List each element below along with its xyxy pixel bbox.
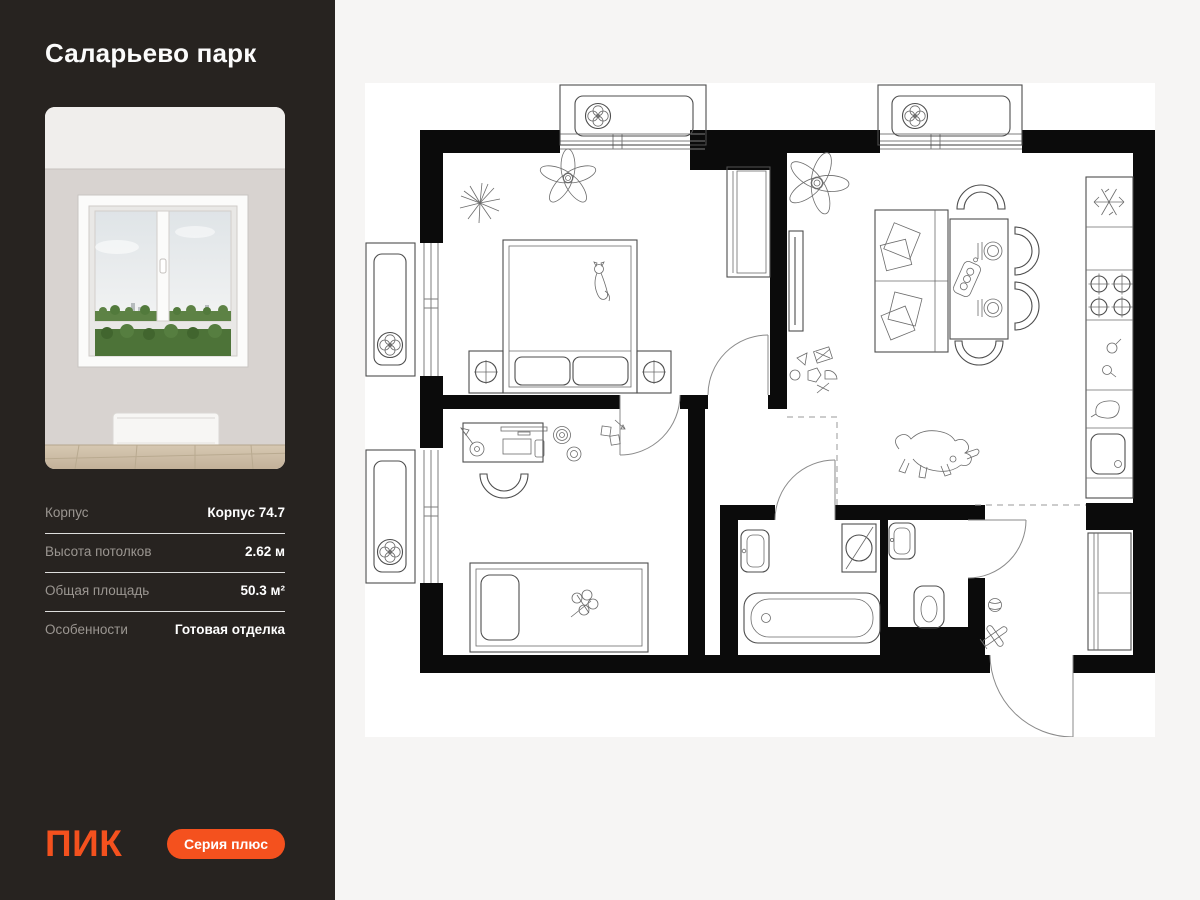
snowflake-icon bbox=[1094, 189, 1124, 215]
tv-unit bbox=[789, 231, 803, 331]
tray bbox=[952, 254, 985, 298]
desk-lamp bbox=[461, 428, 484, 456]
detail-row-features: Особенности Готовая отделка bbox=[45, 612, 285, 650]
bathtub-icon bbox=[744, 593, 880, 643]
wc-sink bbox=[889, 523, 915, 559]
wc bbox=[889, 523, 944, 628]
balcony-window bbox=[424, 450, 438, 583]
nightstand bbox=[637, 351, 671, 393]
detail-value: 2.62 м bbox=[245, 545, 285, 560]
photo-ceiling bbox=[45, 107, 285, 169]
series-plus-badge[interactable]: Серия плюс bbox=[167, 829, 285, 859]
fan-icon bbox=[378, 540, 403, 565]
chair bbox=[1015, 282, 1039, 330]
toy-ball bbox=[989, 599, 1002, 612]
plant bbox=[786, 150, 849, 216]
stove-burners-icon bbox=[1089, 274, 1133, 318]
property-details: Корпус Корпус 74.7 Высота потолков 2.62 … bbox=[45, 495, 285, 649]
detail-label: Особенности bbox=[45, 623, 128, 638]
wardrobe bbox=[727, 167, 770, 277]
plan-panel bbox=[335, 0, 1200, 900]
pik-logo: ПИК bbox=[45, 825, 122, 862]
zone-dashed-lines bbox=[787, 417, 1086, 505]
bedroom bbox=[460, 149, 770, 393]
kettle-icon bbox=[1091, 401, 1119, 418]
washing-machine-icon bbox=[842, 524, 876, 572]
kitchen-counter bbox=[1086, 177, 1133, 498]
chair bbox=[1015, 227, 1039, 275]
ac-box-left-lower bbox=[366, 450, 415, 583]
place-setting bbox=[978, 299, 1002, 317]
door-bedroom bbox=[708, 335, 768, 395]
walls bbox=[420, 130, 1155, 673]
hallway bbox=[977, 533, 1131, 654]
fan-icon bbox=[378, 333, 403, 358]
plant bbox=[460, 183, 500, 223]
sidebar: Саларьево парк bbox=[0, 0, 335, 900]
bed-double bbox=[503, 240, 637, 393]
lamp-icon bbox=[642, 360, 666, 384]
project-title: Саларьево парк bbox=[45, 38, 285, 69]
detail-row-total-area: Общая площадь 50.3 м² bbox=[45, 573, 285, 612]
ac-box-top-right bbox=[878, 85, 1022, 145]
detail-row-ceiling-height: Высота потолков 2.62 м bbox=[45, 534, 285, 573]
floor-plan bbox=[365, 83, 1155, 737]
kitchen-sink-icon bbox=[1091, 434, 1125, 474]
photo-floor bbox=[45, 445, 285, 469]
detail-label: Корпус bbox=[45, 506, 89, 521]
door-bathroom bbox=[775, 460, 835, 520]
sidebar-footer: ПИК Серия плюс bbox=[45, 825, 285, 862]
toilet-icon bbox=[914, 586, 944, 628]
door-wc bbox=[968, 520, 1026, 578]
detail-label: Общая площадь bbox=[45, 584, 149, 599]
dog-drawing bbox=[895, 431, 979, 478]
toy-rings bbox=[554, 427, 582, 462]
hall-closet bbox=[1088, 533, 1131, 650]
ac-box-top-left bbox=[560, 85, 706, 145]
detail-label: Высота потолков bbox=[45, 545, 152, 560]
desk-chair bbox=[480, 474, 528, 498]
bed-single bbox=[470, 563, 648, 652]
balcony-window bbox=[424, 243, 438, 376]
apartment-photo bbox=[45, 107, 285, 469]
cat-drawing bbox=[594, 262, 610, 301]
nightstand bbox=[469, 351, 503, 393]
door-kids-room bbox=[620, 395, 680, 455]
place-setting bbox=[978, 242, 1002, 260]
counter-knobs bbox=[1103, 339, 1122, 377]
desk bbox=[461, 423, 547, 462]
lamp-icon bbox=[474, 360, 498, 384]
detail-value: Готовая отделка bbox=[175, 623, 285, 638]
plan-sheet bbox=[365, 83, 1155, 737]
dining-table bbox=[950, 219, 1008, 339]
door-entry bbox=[990, 655, 1073, 737]
desk-monitor bbox=[501, 427, 547, 457]
ac-box-left-upper bbox=[366, 243, 415, 376]
fan-icon bbox=[586, 104, 611, 129]
toy-flower bbox=[571, 590, 598, 617]
flower bbox=[538, 149, 597, 206]
detail-row-building: Корпус Корпус 74.7 bbox=[45, 495, 285, 534]
photo-illustration bbox=[45, 107, 285, 469]
living-kitchen bbox=[786, 150, 1133, 498]
bathroom bbox=[741, 524, 880, 643]
sofa bbox=[875, 210, 948, 352]
toy-blocks bbox=[601, 420, 625, 445]
photo-window bbox=[78, 195, 248, 367]
fan-icon bbox=[903, 104, 928, 129]
detail-value: 50.3 м² bbox=[240, 584, 285, 599]
detail-value: Корпус 74.7 bbox=[207, 506, 285, 521]
bathroom-sink bbox=[741, 530, 769, 572]
chair bbox=[957, 185, 1005, 209]
chair bbox=[955, 341, 1003, 365]
toys bbox=[790, 347, 837, 393]
